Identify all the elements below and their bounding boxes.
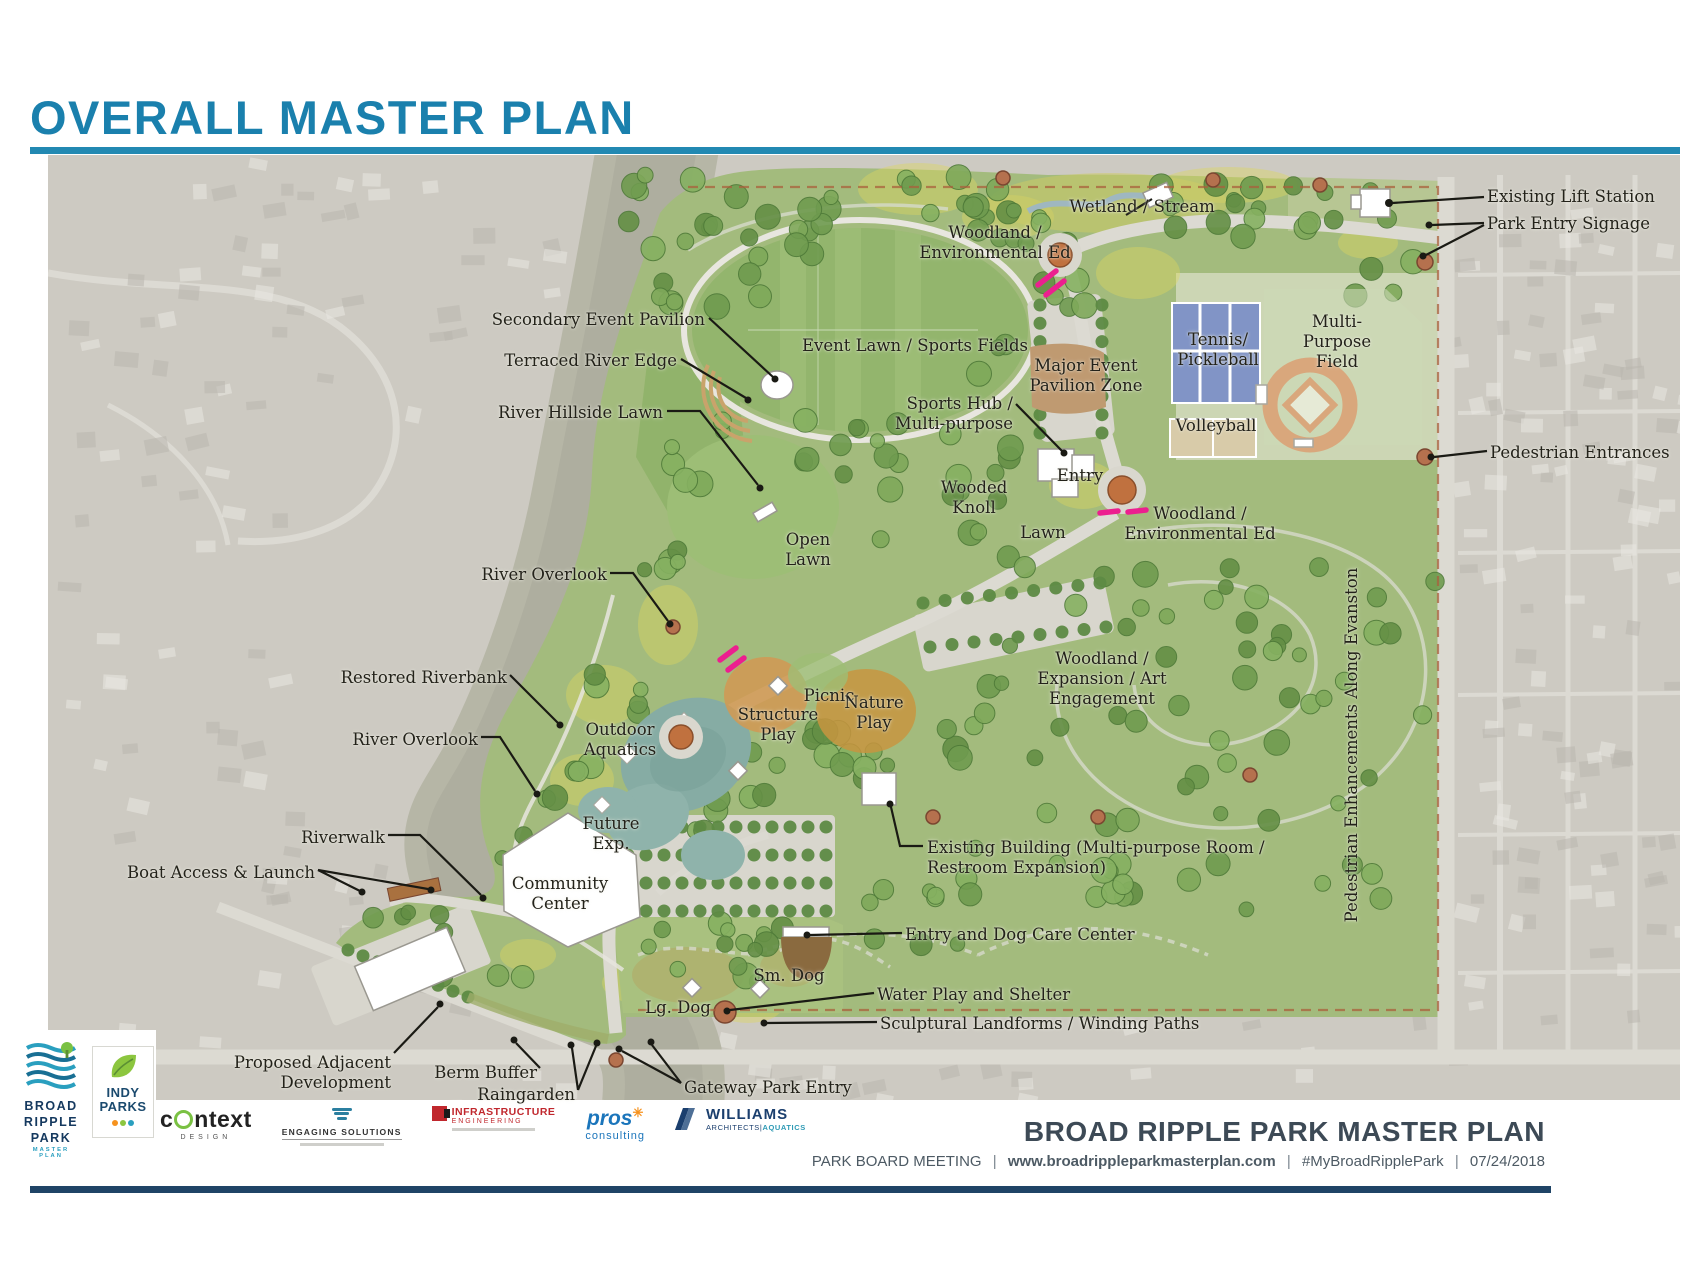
- engaging-tagline-bar: [300, 1143, 384, 1146]
- map-label-gateway-park-entry: Gateway Park Entry: [684, 1078, 852, 1098]
- map-label-entry: Entry: [1057, 466, 1104, 486]
- master-plan-map: Existing Lift StationPark Entry SignageW…: [48, 155, 1680, 1100]
- williams-architects-logo: WILLIAMS ARCHITECTS|AQUATICS: [675, 1106, 806, 1132]
- context-logo-text: c: [160, 1106, 173, 1133]
- context-ring-icon: [174, 1110, 193, 1129]
- map-label-sports-hub: Sports Hub / Multi-purpose: [895, 394, 1013, 434]
- map-label-entry-dog-care: Entry and Dog Care Center: [905, 925, 1135, 945]
- partner-logos: c ntext DESIGN ENGAGING SOLUTIONS INFRAS…: [160, 1106, 806, 1146]
- map-label-water-play-shelter: Water Play and Shelter: [877, 985, 1070, 1005]
- williams-logo-text: WILLIAMS: [706, 1106, 806, 1123]
- map-label-existing-lift-station: Existing Lift Station: [1487, 187, 1655, 207]
- brp-logo-subtitle: MASTER PLAN: [20, 1147, 82, 1159]
- brp-logo-line: BROAD: [20, 1099, 82, 1113]
- brp-logo-line: RIPPLE: [20, 1115, 82, 1129]
- footer-plan-title-block: BROAD RIPPLE PARK MASTER PLAN PARK BOARD…: [812, 1116, 1545, 1170]
- map-label-woodland-env-ed-east: Woodland / Environmental Ed: [1124, 504, 1275, 544]
- plan-hashtag: #MyBroadRipplePark: [1302, 1153, 1444, 1170]
- map-label-woodland-expansion-art: Woodland / Expansion / Art Engagement: [1037, 649, 1166, 709]
- map-label-future-exp: Future Exp.: [583, 814, 640, 854]
- context-logo-text: ntext: [194, 1106, 251, 1133]
- williams-logo-sub2: AQUATICS: [762, 1123, 805, 1132]
- broad-ripple-park-logo: BROAD RIPPLE PARK MASTER PLAN: [20, 1040, 82, 1159]
- map-label-boat-access-launch: Boat Access & Launch: [127, 863, 315, 883]
- map-label-proposed-adjacent-development: Proposed Adjacent Development: [234, 1053, 391, 1093]
- map-label-woodland-env-ed-north: Woodland / Environmental Ed: [919, 223, 1070, 263]
- infrastructure-logo-sub: ENGINEERING: [452, 1118, 556, 1125]
- map-label-raingarden: Raingarden: [477, 1085, 575, 1105]
- indy-parks-logo: INDY PARKS: [92, 1046, 154, 1138]
- map-label-major-event-pavilion-zone: Major Event Pavilion Zone: [1030, 356, 1143, 396]
- ie-square-icon: [432, 1106, 447, 1121]
- williams-logo-sub: ARCHITECTS: [706, 1123, 760, 1132]
- map-label-secondary-event-pavilion: Secondary Event Pavilion: [492, 310, 705, 330]
- pros-logo-sub: consulting: [585, 1130, 645, 1142]
- map-label-river-overlook-south: River Overlook: [352, 730, 478, 750]
- map-label-sculptural-landforms: Sculptural Landforms / Winding Paths: [880, 1014, 1199, 1034]
- footer-navy-rule: [30, 1186, 1551, 1193]
- map-label-terraced-river-edge: Terraced River Edge: [504, 351, 677, 371]
- map-label-pedestrian-enhancements-evanston: Pedestrian Enhancements Along Evanston: [1342, 568, 1362, 923]
- master-plan-slide: OVERALL MASTER PLAN: [0, 0, 1694, 1275]
- starburst-icon: ✳: [632, 1105, 643, 1120]
- meeting-label: PARK BOARD MEETING: [812, 1153, 982, 1170]
- plan-title: BROAD RIPPLE PARK MASTER PLAN: [812, 1116, 1545, 1148]
- map-label-existing-building: Existing Building (Multi-purpose Room / …: [927, 838, 1265, 878]
- context-design-logo: c ntext DESIGN: [160, 1106, 252, 1141]
- map-label-sm-dog: Sm. Dog: [753, 966, 824, 986]
- map-label-event-lawn-sports-fields: Event Lawn / Sports Fields: [802, 336, 1028, 356]
- leaf-icon: [106, 1051, 140, 1081]
- map-label-riverwalk: Riverwalk: [301, 828, 385, 848]
- map-label-open-lawn: Open Lawn: [785, 530, 831, 570]
- brp-logo-line: PARK: [20, 1131, 82, 1145]
- map-label-park-entry-signage: Park Entry Signage: [1487, 214, 1650, 234]
- plan-website-url[interactable]: www.broadrippleparkmasterplan.com: [1008, 1153, 1276, 1170]
- map-label-community-center: Community Center: [512, 874, 608, 914]
- meeting-date: 07/24/2018: [1470, 1153, 1545, 1170]
- map-labels: Existing Lift StationPark Entry SignageW…: [48, 155, 1680, 1100]
- map-label-river-hillside-lawn: River Hillside Lawn: [498, 403, 663, 423]
- indy-logo-line: INDY: [93, 1086, 153, 1100]
- pros-consulting-logo: pros✳ consulting: [585, 1106, 645, 1142]
- indy-logo-dots: [93, 1113, 153, 1131]
- engaging-solutions-logo: ENGAGING SOLUTIONS: [282, 1106, 402, 1146]
- map-label-wooded-knoll: Wooded Knoll: [941, 478, 1008, 518]
- map-label-volleyball: Volleyball: [1176, 416, 1257, 436]
- footer-meta-line: PARK BOARD MEETING | www.broadripplepark…: [812, 1153, 1545, 1170]
- map-label-lg-dog: Lg. Dog: [645, 998, 711, 1018]
- infrastructure-tagline-bar: [452, 1128, 535, 1131]
- infrastructure-engineering-logo: INFRASTRUCTURE ENGINEERING: [432, 1106, 556, 1131]
- map-label-outdoor-aquatics: Outdoor Aquatics: [584, 720, 657, 760]
- context-logo-sub: DESIGN: [160, 1134, 252, 1141]
- indy-logo-line: PARKS: [93, 1100, 153, 1114]
- map-label-berm-buffer: Berm Buffer: [434, 1063, 537, 1083]
- page-title: OVERALL MASTER PLAN: [30, 90, 635, 145]
- stacked-bars-icon: [332, 1108, 352, 1124]
- map-label-multi-purpose-field: Multi- Purpose Field: [1303, 312, 1371, 372]
- map-label-restored-riverbank: Restored Riverbank: [341, 668, 507, 688]
- pros-logo-text: pros: [587, 1107, 633, 1130]
- map-label-structure-play: Structure Play: [738, 705, 819, 745]
- map-label-nature-play: Nature Play: [844, 693, 903, 733]
- map-label-wetland-stream: Wetland / Stream: [1069, 197, 1214, 217]
- map-label-tennis-pickleball: Tennis/ Pickleball: [1177, 330, 1259, 370]
- map-label-river-overlook-north: River Overlook: [481, 565, 607, 585]
- map-label-pedestrian-entrances: Pedestrian Entrances: [1490, 443, 1670, 463]
- map-label-lawn: Lawn: [1020, 523, 1066, 543]
- engaging-logo-text: ENGAGING SOLUTIONS: [282, 1127, 402, 1140]
- infrastructure-logo-text: INFRASTRUCTURE: [452, 1106, 556, 1118]
- title-underline: [30, 147, 1680, 154]
- waves-tree-icon: [23, 1040, 79, 1092]
